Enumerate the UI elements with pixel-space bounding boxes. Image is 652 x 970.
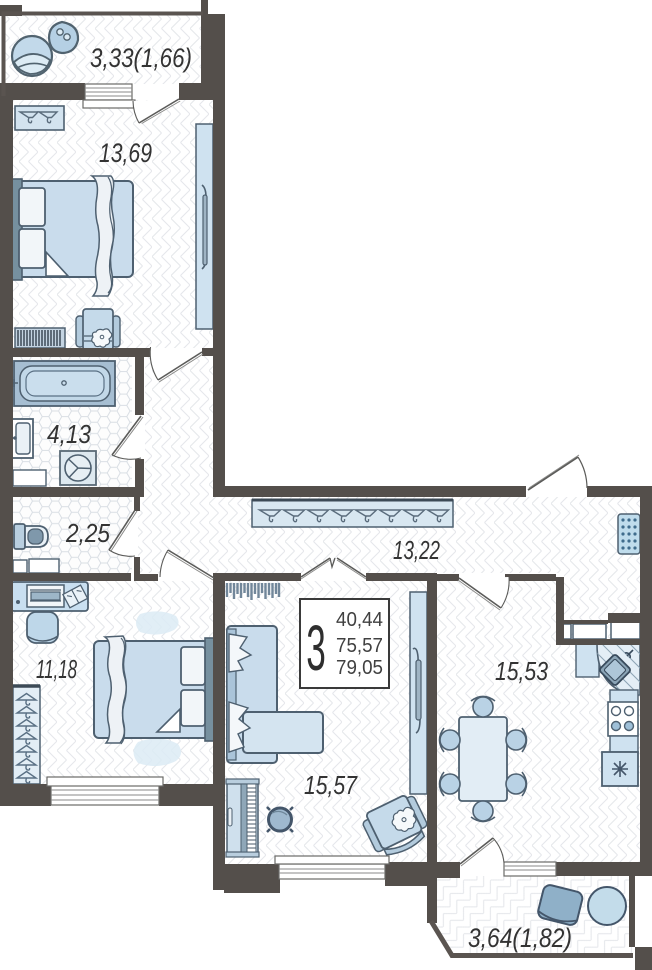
svg-text:3,33(1,66): 3,33(1,66) [90,43,192,73]
svg-text:75,57: 75,57 [336,635,383,657]
svg-text:4,13: 4,13 [47,419,91,449]
svg-text:13,22: 13,22 [393,535,440,565]
svg-text:15,53: 15,53 [495,656,548,686]
svg-text:13,69: 13,69 [99,138,152,168]
svg-text:15,57: 15,57 [304,770,358,800]
svg-text:3,64(1,82): 3,64(1,82) [468,923,572,953]
svg-text:2,25: 2,25 [65,518,110,548]
svg-text:79,05: 79,05 [336,657,383,679]
svg-text:40,44: 40,44 [336,609,383,631]
svg-text:11,18: 11,18 [36,654,77,684]
svg-text:3: 3 [306,612,326,684]
